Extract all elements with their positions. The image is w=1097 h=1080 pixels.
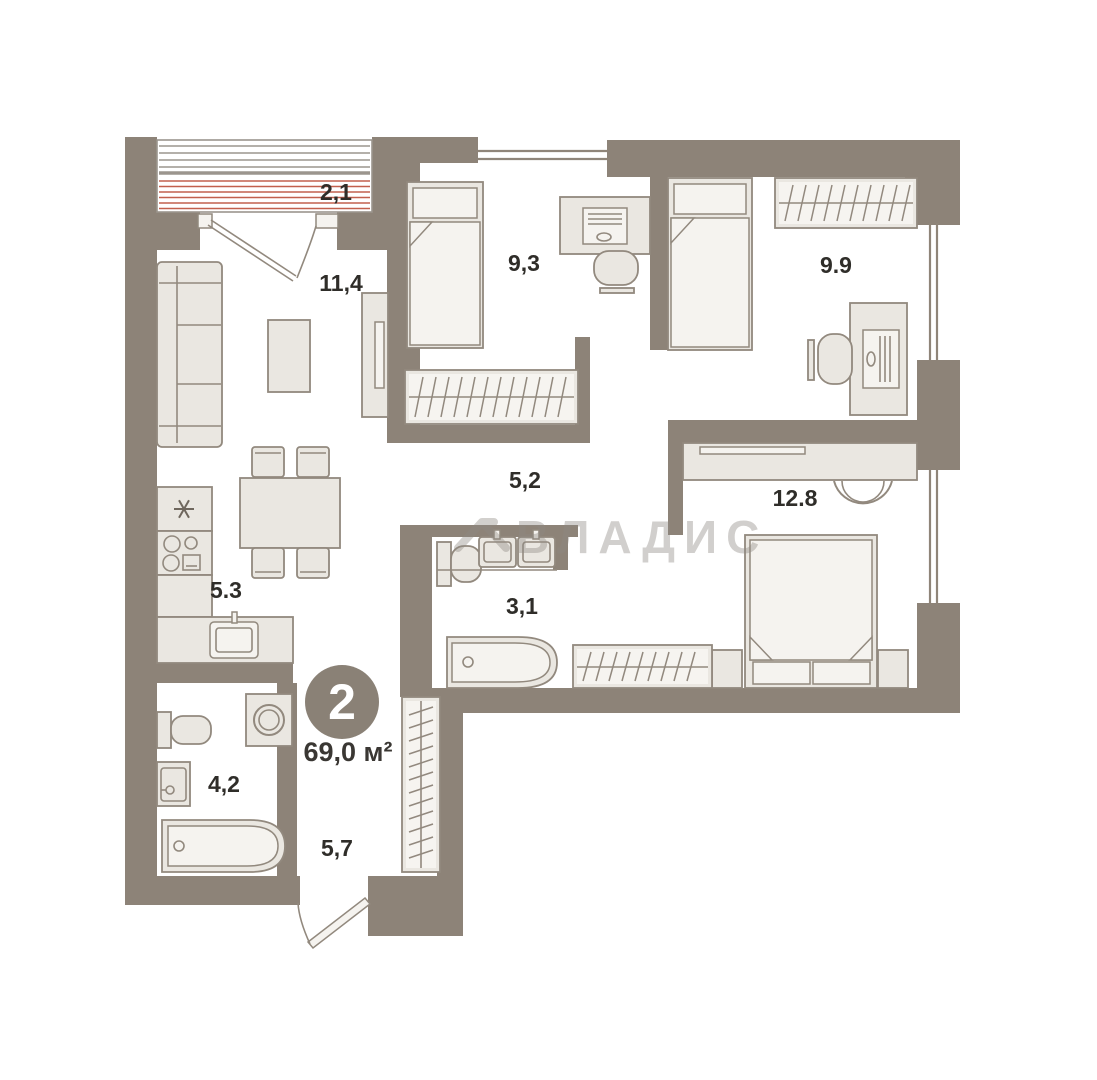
dining-chair — [252, 548, 284, 578]
bathtub-inner — [452, 643, 550, 682]
sofa — [157, 262, 222, 447]
faucet-icon — [232, 612, 237, 623]
wall-bottom-entry-block — [368, 876, 463, 936]
washing-machine — [246, 694, 292, 746]
room-label-entry: 5,7 — [321, 835, 353, 861]
room-label-bedroom2: 9.9 — [820, 252, 852, 278]
wall-bathroom1-left — [400, 525, 432, 697]
watermark-text: ВЛАДИС — [516, 511, 768, 563]
blanket — [671, 218, 749, 347]
room-label-hall: 5,2 — [509, 467, 541, 493]
wall-right-pier-bottom — [917, 603, 960, 690]
badge-room-count: 2 — [328, 674, 356, 730]
room-label-bedroom1: 9,3 — [508, 250, 540, 276]
wall-bedroom2-bedroom3 — [668, 420, 917, 443]
toilet-tank — [157, 712, 171, 748]
nightstand — [712, 650, 742, 688]
entry-door-swing-arc — [298, 903, 310, 944]
desk-chair-base — [808, 340, 814, 380]
floorplan-svg: 2,1 11,4 9,3 9.9 5,2 12.8 5.3 3,1 4,2 5,… — [0, 0, 1097, 1080]
kitchen-cabinet — [157, 575, 212, 617]
badge-total-area: 69,0 м² — [303, 737, 392, 767]
nightstand — [878, 650, 908, 688]
room-label-bedroom3: 12.8 — [773, 485, 818, 511]
dining-chair — [297, 447, 329, 477]
pillow — [753, 662, 810, 684]
monitor-icon — [863, 330, 899, 388]
pillow — [674, 184, 746, 214]
floorplan-canvas: 2,1 11,4 9,3 9.9 5,2 12.8 5.3 3,1 4,2 5,… — [0, 0, 1097, 1080]
wall-balcony-band-left — [157, 212, 200, 250]
room-label-bathroom1: 3,1 — [506, 593, 538, 619]
wall-bedroom1-bottom — [387, 425, 577, 443]
dining-chair — [297, 548, 329, 578]
room-label-bathroom2: 4,2 — [208, 771, 240, 797]
dining-table — [240, 478, 340, 548]
wall-bottom-left — [125, 876, 300, 905]
pillow — [813, 662, 870, 684]
toilet-bowl — [451, 546, 481, 582]
coffee-table — [268, 320, 310, 392]
desk-chair — [594, 251, 638, 285]
wall-bottom-main — [432, 688, 960, 713]
room-label-balcony: 2,1 — [320, 179, 352, 205]
wall-bedroom1-bedroom2 — [650, 168, 668, 350]
kitchen — [157, 447, 340, 663]
tv-icon — [375, 322, 384, 388]
room-label-kitchen: 5.3 — [210, 577, 242, 603]
bedroom3 — [573, 443, 917, 688]
desk-chair-base — [600, 288, 634, 293]
toilet-tank — [437, 542, 451, 586]
entry-door-leaf — [308, 898, 370, 948]
desk-chair — [818, 334, 852, 384]
room-label-living: 11,4 — [319, 270, 363, 296]
blanket — [410, 222, 480, 345]
bedroom1 — [405, 182, 650, 424]
door-jamb — [316, 214, 338, 228]
bedroom2 — [668, 178, 917, 415]
wall-left-outer — [125, 137, 157, 905]
door-swing-arc — [297, 226, 316, 278]
vanity-shelf — [700, 447, 805, 454]
wall-right-pier-mid — [917, 360, 960, 470]
toilet-bowl — [171, 716, 211, 744]
wall-top-bedroom1-left — [420, 137, 478, 163]
pillow — [413, 188, 477, 218]
rooms-badge: 2 69,0 м² — [303, 665, 392, 767]
dining-chair — [252, 447, 284, 477]
